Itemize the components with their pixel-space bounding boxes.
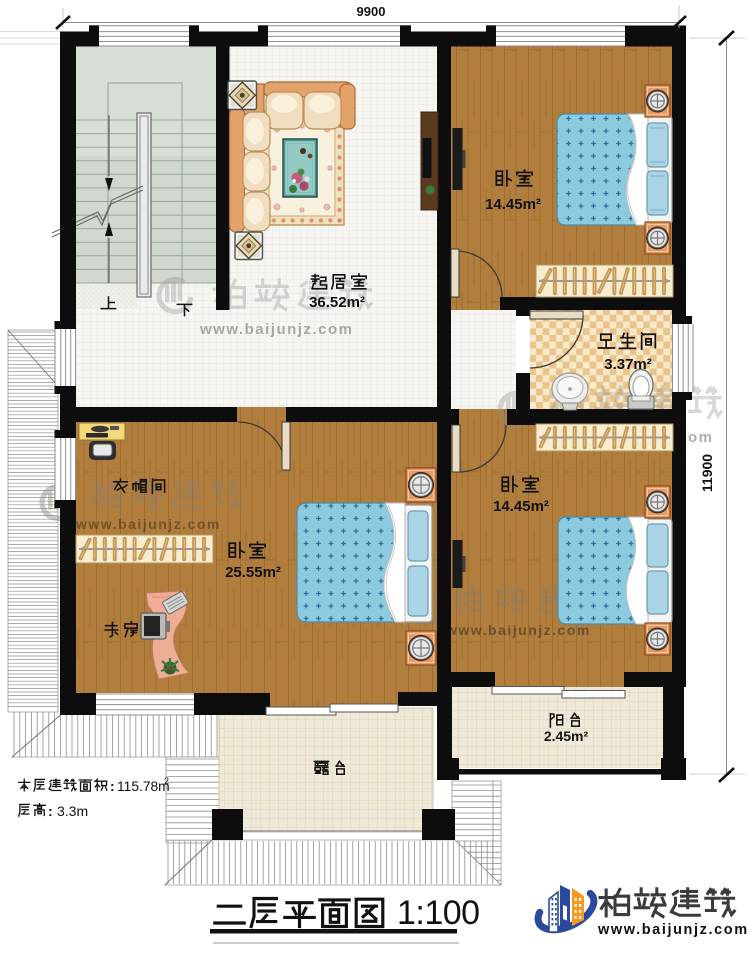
svg-text:14.45m²: 14.45m² (493, 498, 549, 515)
svg-text:2.45m²: 2.45m² (544, 728, 589, 744)
svg-text:14.45m²: 14.45m² (485, 196, 541, 213)
svg-text:9900: 9900 (357, 4, 386, 19)
svg-text:3.37m²: 3.37m² (604, 356, 652, 373)
svg-text:36.52m²: 36.52m² (309, 294, 365, 311)
svg-text:www.baijunjz.com: www.baijunjz.com (75, 516, 221, 532)
svg-text:25.55m²: 25.55m² (225, 564, 281, 581)
svg-text:11900: 11900 (699, 454, 715, 492)
svg-text:www.baijunjz.com: www.baijunjz.com (199, 321, 353, 338)
svg-text::: : (110, 778, 115, 794)
svg-text:3.3m: 3.3m (57, 803, 88, 819)
svg-text:www.baijunjz.com: www.baijunjz.com (597, 922, 749, 938)
svg-text::: : (48, 803, 53, 819)
svg-text:2: 2 (164, 776, 169, 786)
svg-text:115.78m: 115.78m (117, 779, 170, 794)
svg-text:1:100: 1:100 (397, 894, 480, 932)
